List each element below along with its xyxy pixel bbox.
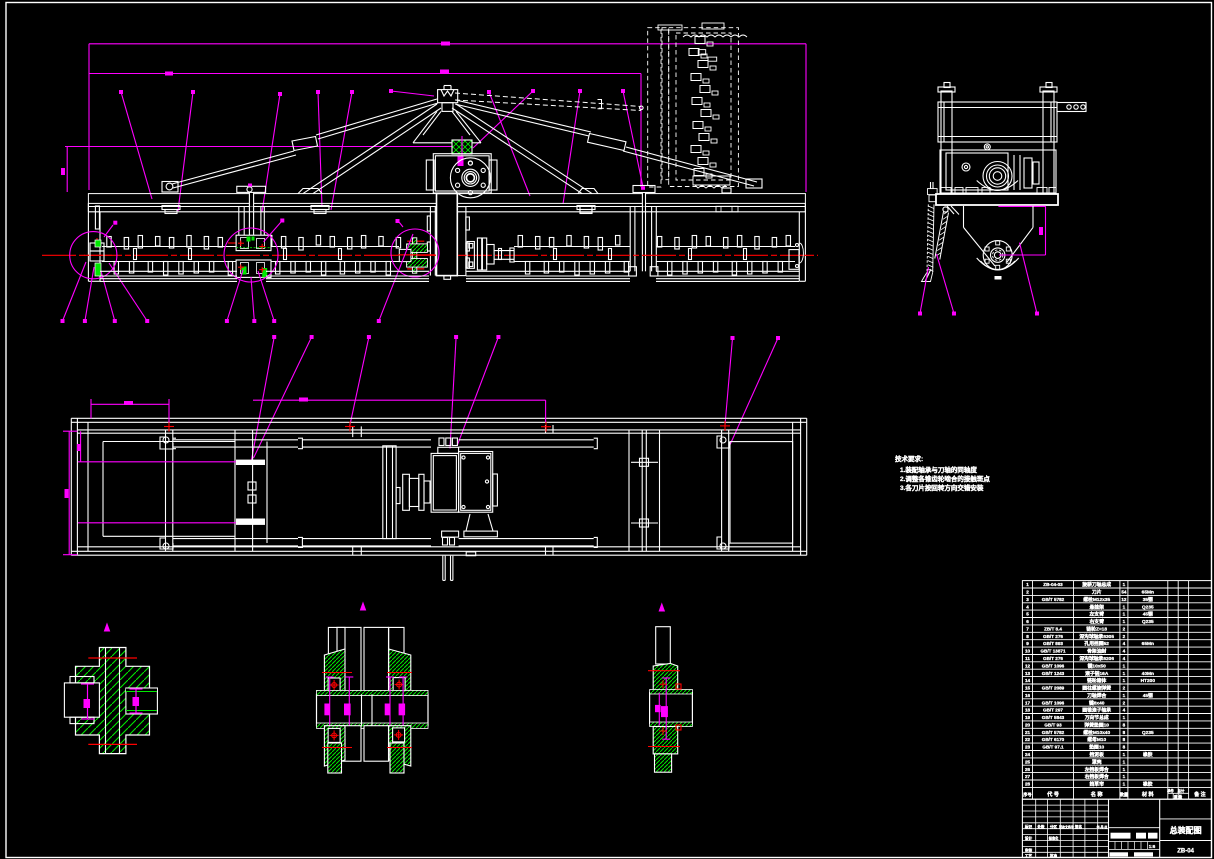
svg-text:22: 22 [1025,737,1031,742]
svg-text:万向节总成: 万向节总成 [1084,714,1109,721]
svg-text:1: 1 [1123,782,1126,787]
svg-text:GB/T 5843: GB/T 5843 [1042,715,1065,720]
svg-text:2: 2 [1026,590,1029,595]
svg-text:代 号: 代 号 [1046,790,1059,798]
svg-text:刀片: 刀片 [1091,589,1102,596]
svg-text:14: 14 [1025,678,1031,683]
svg-text:总装配图: 总装配图 [1170,825,1202,835]
svg-text:Q235: Q235 [1142,730,1154,736]
svg-text:GB/T 1243: GB/T 1243 [1042,671,1065,676]
svg-text:5: 5 [1026,612,1029,617]
svg-text:8: 8 [1123,723,1126,728]
svg-text:技术要求:: 技术要求: [895,454,923,463]
svg-text:1: 1 [1123,671,1126,676]
svg-text:1: 1 [1123,767,1126,772]
svg-text:1: 1 [1123,759,1126,764]
svg-text:1: 1 [1026,582,1029,587]
svg-text:签名: 签名 [1075,824,1083,829]
svg-text:1: 1 [1123,612,1126,617]
svg-text:11: 11 [1025,656,1030,661]
svg-text:7: 7 [1026,627,1029,632]
svg-text:深沟球轴承6305: 深沟球轴承6305 [1079,633,1114,640]
svg-text:8: 8 [1123,745,1126,750]
svg-text:序号: 序号 [1023,791,1031,798]
svg-text:悬挂架: 悬挂架 [1088,603,1104,610]
svg-text:批准: 批准 [1050,853,1058,858]
svg-text:20: 20 [1025,723,1031,728]
svg-text:1: 1 [1123,774,1126,779]
svg-text:刀轴焊合: 刀轴焊合 [1086,692,1106,699]
svg-text:标记: 标记 [1024,824,1033,829]
svg-text:1: 1 [1123,663,1126,668]
svg-text:2: 2 [1123,634,1126,639]
svg-text:键8x40: 键8x40 [1088,699,1105,706]
svg-text:单件: 单件 [1167,788,1174,793]
svg-text:工艺: 工艺 [1025,853,1033,858]
svg-text:24: 24 [1025,752,1031,757]
svg-text:GB/T 5782: GB/T 5782 [1042,730,1065,735]
svg-text:挡泥板: 挡泥板 [1089,751,1104,758]
svg-text:ZB-04: ZB-04 [1177,849,1194,855]
svg-text:螺栓M10x40: 螺栓M10x40 [1083,729,1110,736]
svg-text:滚子链16A: 滚子链16A [1085,670,1109,677]
svg-text:45钢: 45钢 [1143,692,1153,699]
svg-text:10: 10 [1025,649,1031,654]
svg-text:54: 54 [1121,590,1127,595]
svg-text:9: 9 [1026,641,1029,646]
svg-text:1.装配轴承与刀轴的同轴度: 1.装配轴承与刀轴的同轴度 [900,465,977,474]
svg-text:年.月.日: 年.月.日 [1097,824,1108,829]
svg-text:45钢: 45钢 [1143,611,1153,618]
svg-text:27: 27 [1025,774,1031,779]
svg-text:1: 1 [1123,715,1126,720]
svg-text:8: 8 [1123,737,1126,742]
svg-text:Q235: Q235 [1142,619,1154,625]
svg-text:35钢: 35钢 [1143,596,1153,603]
svg-text:65Mn: 65Mn [1142,590,1154,596]
svg-text:6: 6 [1026,619,1029,624]
svg-text:橡胶: 橡胶 [1143,751,1153,758]
svg-text:骨架油封: 骨架油封 [1087,648,1106,655]
svg-text:17: 17 [1025,700,1031,705]
svg-text:垫圈10: 垫圈10 [1089,744,1104,751]
svg-text:HT200: HT200 [1141,678,1156,684]
svg-text:罩壳: 罩壳 [1092,758,1102,765]
svg-text:GB/T 2089: GB/T 2089 [1042,686,1065,691]
svg-text:分区: 分区 [1050,824,1058,829]
svg-text:GB/T 6170: GB/T 6170 [1042,737,1065,742]
svg-text:弹簧垫圈10: 弹簧垫圈10 [1084,722,1109,729]
svg-text:链轮Z=18: 链轮Z=18 [1085,626,1107,633]
svg-text:旋耕刀轴总成: 旋耕刀轴总成 [1081,581,1111,588]
svg-text:1: 1 [1123,693,1126,698]
svg-text:4: 4 [1123,708,1126,713]
svg-text:橡胶: 橡胶 [1143,781,1153,788]
svg-text:左支臂: 左支臂 [1088,611,1104,618]
svg-text:1: 1 [1123,582,1126,587]
svg-text:ZB/T 8.4: ZB/T 8.4 [1044,627,1062,632]
svg-text:总计: 总计 [1178,788,1185,793]
svg-text:GB/T 97.1: GB/T 97.1 [1042,745,1064,750]
svg-text:键10x50: 键10x50 [1087,662,1106,669]
svg-text:28: 28 [1025,782,1031,787]
svg-text:65Mn: 65Mn [1142,641,1154,647]
svg-text:深沟球轴承6206: 深沟球轴承6206 [1079,655,1114,662]
svg-text:13: 13 [1025,671,1031,676]
svg-text:GB/T 893: GB/T 893 [1043,641,1063,646]
svg-text:链轮箱体: 链轮箱体 [1086,677,1106,684]
svg-text:8: 8 [1026,634,1029,639]
svg-text:2.调整各锥齿轮啮合的接触斑点: 2.调整各锥齿轮啮合的接触斑点 [900,474,990,483]
svg-text:4: 4 [1026,604,1029,609]
svg-text:右支臂: 右支臂 [1089,618,1104,625]
svg-text:18: 18 [1025,708,1031,713]
svg-text:1: 1 [1123,752,1126,757]
svg-text:12: 12 [1121,597,1127,602]
svg-text:40Mn: 40Mn [1142,671,1154,677]
svg-text:GB/T 276: GB/T 276 [1043,634,1063,639]
svg-text:3.各刀片按回转方向交错安装: 3.各刀片按回转方向交错安装 [900,483,984,492]
svg-text:圆柱螺旋弹簧: 圆柱螺旋弹簧 [1082,685,1111,692]
svg-text:1: 1 [1123,678,1126,683]
svg-text:3: 3 [1026,597,1029,602]
svg-text:材 料: 材 料 [1141,790,1155,798]
svg-text:2: 2 [1123,700,1126,705]
svg-text:螺栓M12x35: 螺栓M12x35 [1083,596,1110,603]
svg-text:GB/T 276: GB/T 276 [1043,656,1063,661]
svg-text:4: 4 [1123,656,1126,661]
svg-text:挡草帘: 挡草帘 [1089,781,1104,788]
svg-text:圆锥滚子轴承: 圆锥滚子轴承 [1082,707,1111,714]
svg-text:重 量: 重 量 [1174,794,1183,799]
svg-text:16: 16 [1025,693,1031,698]
svg-text:右挡板焊合: 右挡板焊合 [1085,773,1109,780]
svg-text:GB/T 5782: GB/T 5782 [1042,597,1065,602]
svg-text:4: 4 [1123,649,1126,654]
svg-text:19: 19 [1025,715,1031,720]
svg-text:GB/T 297: GB/T 297 [1043,708,1063,713]
svg-text:1: 1 [1123,604,1126,609]
svg-text:12: 12 [1025,663,1031,668]
svg-text:1: 1 [1123,619,1126,624]
svg-text:2: 2 [1123,686,1126,691]
svg-text:标准化: 标准化 [1048,836,1059,841]
svg-text:备 注: 备 注 [1193,791,1205,798]
svg-text:26: 26 [1025,767,1031,772]
svg-text:数量: 数量 [1120,791,1129,798]
svg-text:4: 4 [1123,641,1126,646]
svg-text:ZB-04-03: ZB-04-03 [1043,582,1063,587]
svg-text:8: 8 [1123,730,1126,735]
svg-text:Q235: Q235 [1142,604,1154,610]
svg-text:处数: 处数 [1036,824,1045,829]
svg-text:名 称: 名 称 [1091,790,1104,798]
svg-text:孔用挡圈52: 孔用挡圈52 [1084,640,1109,647]
svg-text:25: 25 [1025,759,1031,764]
svg-text:15: 15 [1025,686,1031,691]
svg-text:螺母M10: 螺母M10 [1087,736,1106,743]
svg-text:2: 2 [1123,627,1126,632]
svg-text:GB/T 93: GB/T 93 [1044,723,1062,728]
svg-text:设计: 设计 [1025,836,1033,841]
svg-text:GB/T 1096: GB/T 1096 [1042,700,1065,705]
svg-text:21: 21 [1025,730,1031,735]
svg-text:GB/T 1096: GB/T 1096 [1042,663,1065,668]
svg-text:GB/T 13871: GB/T 13871 [1040,649,1065,654]
svg-text:左挡板焊合: 左挡板焊合 [1084,766,1109,773]
svg-text:23: 23 [1025,745,1031,750]
svg-text:审核: 审核 [1025,847,1033,852]
svg-text:1:6: 1:6 [1149,844,1156,849]
svg-text:更改文件号: 更改文件号 [1059,824,1074,829]
